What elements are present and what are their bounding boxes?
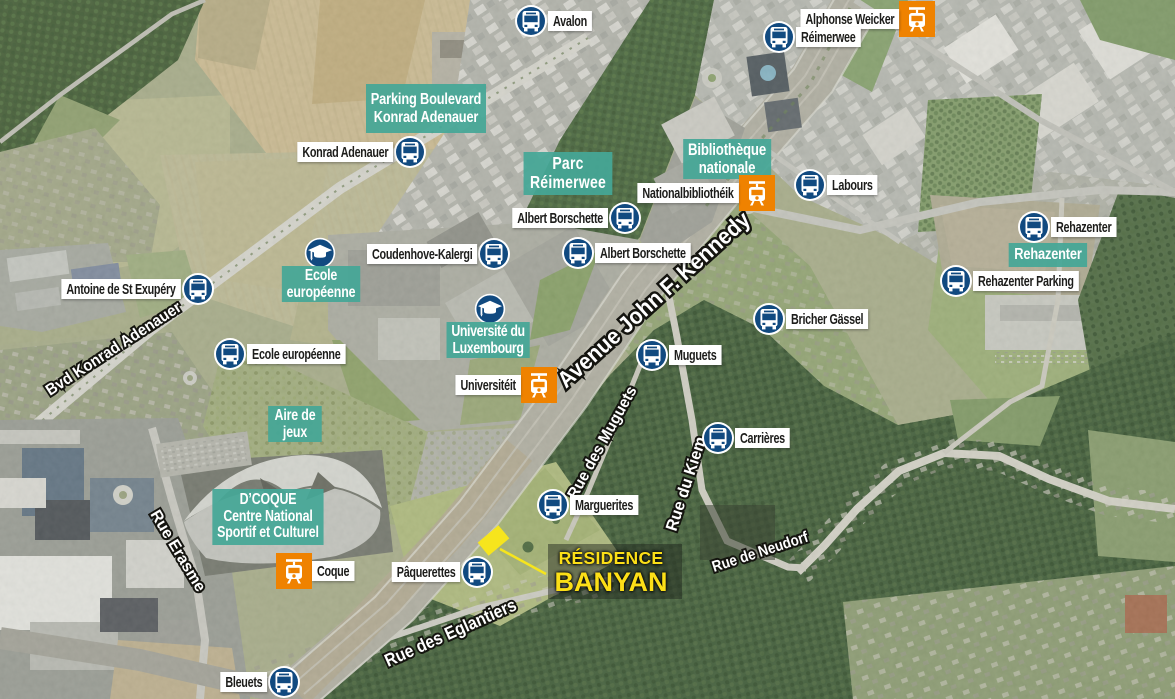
svg-text:Rue de Neudorf: Rue de Neudorf: [710, 529, 811, 576]
svg-text:Bvd Konrad Adenauer: Bvd Konrad Adenauer: [43, 299, 185, 399]
svg-text:Rue Erasme: Rue Erasme: [147, 507, 209, 595]
svg-text:Rue des Muguets: Rue des Muguets: [565, 383, 641, 502]
svg-text:Rue des Eglantiers: Rue des Eglantiers: [381, 595, 519, 671]
